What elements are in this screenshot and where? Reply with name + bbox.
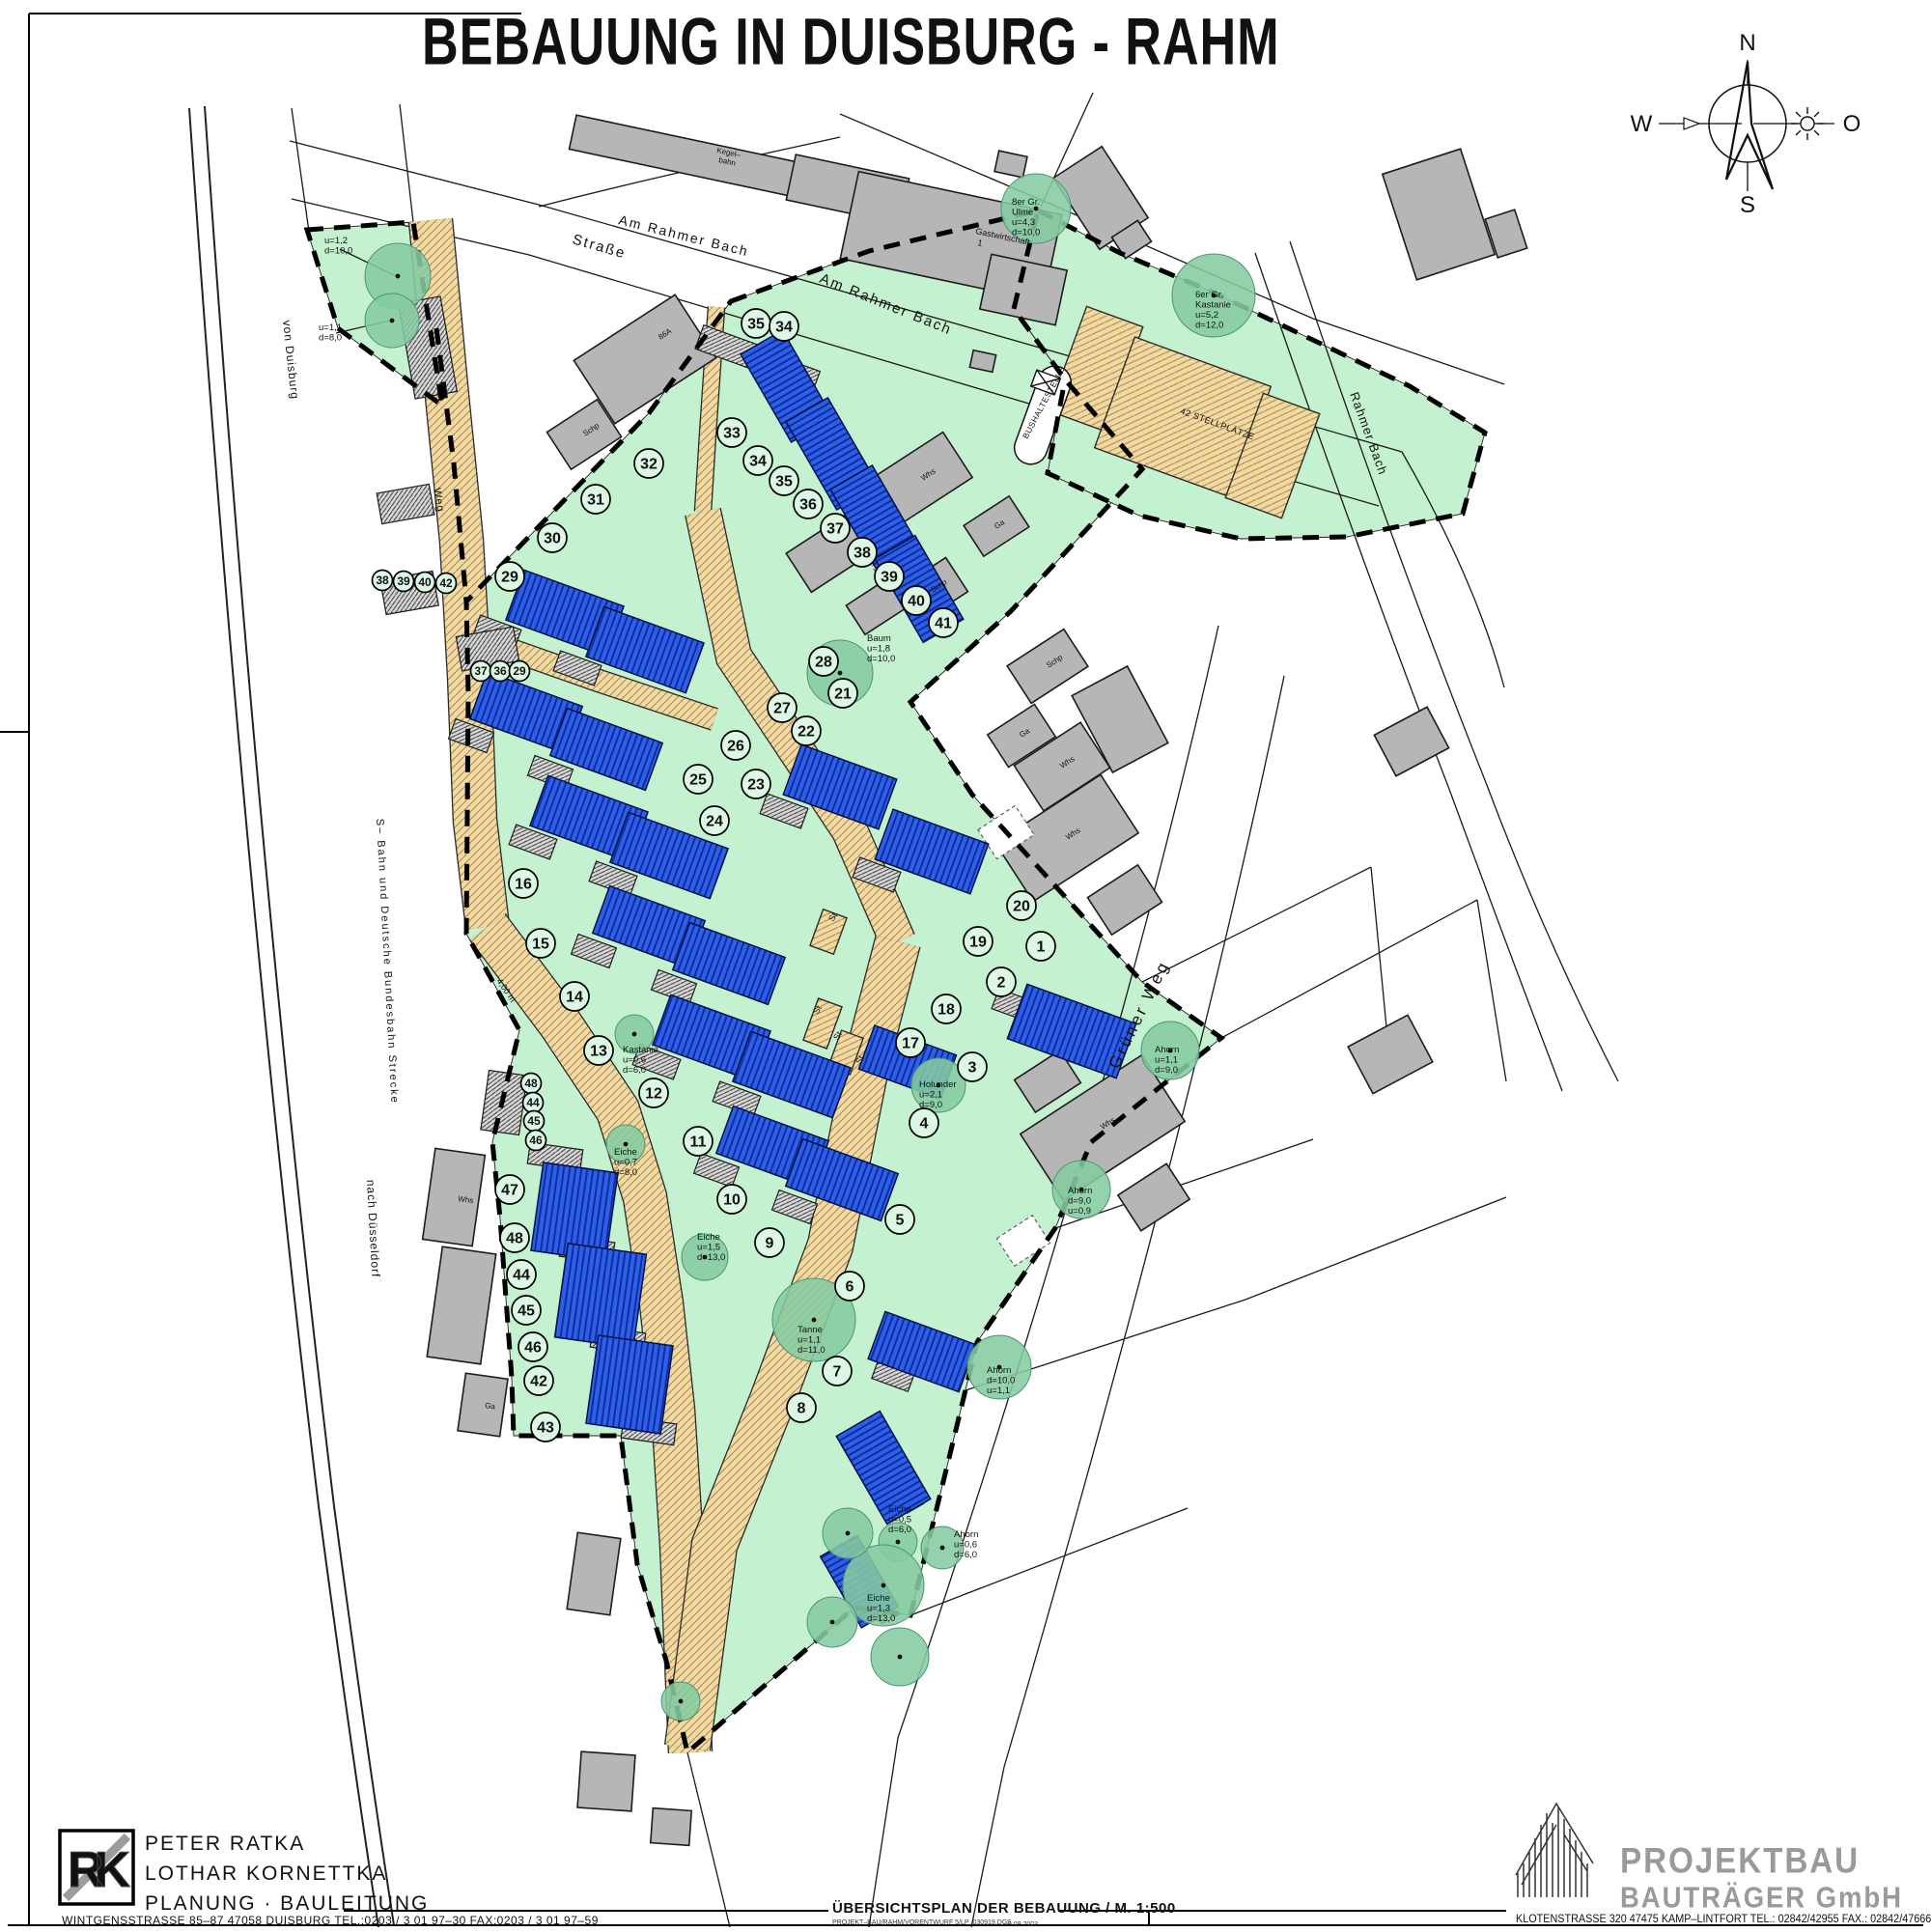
existing-building	[427, 1246, 495, 1364]
compass-west-arrow	[1684, 118, 1699, 129]
tree-trunk-dot	[396, 274, 401, 279]
tree-trunk-dot	[624, 1142, 629, 1147]
architect-block: PETER RATKA LOTHAR KORNETTKA PLANUNG · B…	[145, 1829, 429, 1918]
lot-number: 44	[513, 1268, 530, 1284]
lot-number: 9	[766, 1236, 774, 1252]
plan-title-block: ÜBERSICHTSPLAN DER BEBAUUNG / M. 1:500 P…	[832, 1900, 1161, 1926]
tree-label: u=1,1d=8,0	[319, 322, 342, 344]
street-label: nach Düsseldorf	[364, 1179, 382, 1277]
tree-trunk-dot	[679, 1699, 684, 1704]
lot-number: 7	[833, 1364, 842, 1381]
lot-number: 32	[640, 457, 658, 473]
lot-number: 38	[854, 546, 871, 562]
garage-strip	[377, 484, 434, 523]
parking-group-number: 37	[474, 664, 488, 678]
lot-number: 15	[532, 937, 549, 953]
title-block: PETER RATKA LOTHAR KORNETTKA PLANUNG · B…	[0, 1815, 1931, 1932]
lot-number: 34	[775, 320, 793, 336]
lot-number: 23	[747, 777, 765, 794]
parking-group-number: 45	[527, 1114, 541, 1128]
lot-number: 45	[518, 1303, 535, 1320]
tree-trunk-dot	[390, 319, 395, 323]
parking-group-number: 44	[526, 1096, 540, 1109]
sun-icon-ray	[1796, 130, 1801, 135]
plan-file: PROJEKT–BAU/RAHM/VORENTWURF 5/LP_030919.…	[832, 1919, 1161, 1926]
new-building-roof	[586, 1335, 673, 1434]
existing-building	[1383, 149, 1495, 280]
lot-number: 26	[727, 739, 744, 755]
lot-number: 39	[881, 570, 898, 586]
lot-number: 34	[749, 454, 767, 470]
lot-number: 16	[515, 877, 532, 893]
parking-group-number: 38	[376, 574, 389, 587]
lot-number: 10	[723, 1192, 741, 1209]
existing-building	[1118, 1163, 1189, 1231]
tree-trunk-dot	[940, 1546, 945, 1551]
lot-number: 42	[530, 1374, 547, 1390]
plan-title: ÜBERSICHTSPLAN DER BEBAUUNG / M. 1:500	[832, 1900, 1161, 1917]
property-line	[1221, 900, 1477, 1038]
tree-trunk-dot	[632, 1032, 637, 1037]
lot-number: 17	[902, 1036, 919, 1052]
lot-number: 35	[775, 474, 793, 490]
tree-trunk-dot	[896, 1540, 901, 1545]
sun-icon-core	[1801, 117, 1814, 130]
architect-name-1: PETER RATKA	[145, 1829, 429, 1859]
lot-number: 19	[969, 935, 987, 951]
plan-date: 19.09.2003	[1004, 1921, 1038, 1928]
lot-number: 48	[506, 1231, 523, 1247]
existing-building	[423, 1148, 486, 1246]
compass-rose: NSWO	[1631, 30, 1861, 218]
lot-number: 11	[690, 1134, 707, 1151]
existing-building	[969, 350, 995, 373]
architect-address: WINTGENSSTRASSE 85–87 47058 DUISBURG TEL…	[62, 1914, 599, 1927]
sun-icon-ray	[1814, 130, 1819, 135]
company-name-2: BAUTRÄGER GmbH	[1620, 1882, 1903, 1916]
property-line	[292, 108, 309, 232]
lot-number: 47	[501, 1183, 518, 1199]
lot-number: 18	[938, 1002, 955, 1019]
compass-label-east: O	[1843, 111, 1861, 137]
lot-number: 27	[773, 701, 791, 717]
tree-trunk-dot	[898, 1655, 903, 1660]
property-line	[1477, 900, 1506, 1081]
existing-building	[1348, 1015, 1433, 1093]
street-label: S– Bahn und Deutsche Bundesbahn Strecke	[374, 819, 400, 1106]
lot-number: 3	[968, 1060, 977, 1077]
compass-needle	[1726, 62, 1773, 189]
existing-building	[994, 151, 1027, 178]
tree-label: Ahornd=9,0u=0,9	[1068, 1186, 1092, 1217]
lot-number: 35	[747, 317, 765, 333]
page: { "title": "BEBAUUNG IN DUISBURG - RAHM"…	[0, 0, 1931, 1932]
lot-number: 21	[834, 686, 852, 703]
tree-label: Ahornu=0,6d=6,0	[954, 1529, 978, 1560]
lot-number: 29	[501, 570, 518, 586]
lot-number: 14	[566, 990, 583, 1006]
lot-number: 1	[1037, 939, 1046, 956]
lot-number: 37	[826, 521, 844, 538]
company-name-1: PROJEKTBAU	[1620, 1841, 1903, 1882]
lot-number: 24	[706, 814, 723, 830]
existing-building	[1374, 707, 1448, 775]
tree-trunk-dot	[812, 1318, 817, 1323]
architect-name-2: LOTHAR KORNETTKA	[145, 1859, 429, 1889]
lot-number: 22	[798, 724, 815, 741]
drawing-title: BEBAUUNG IN DUISBURG - RAHM	[422, 4, 1065, 80]
tree-label: Eicheu=0,5d=6,0	[888, 1504, 911, 1535]
parking-group-number: 46	[529, 1134, 543, 1147]
lot-number: 28	[815, 655, 832, 671]
lot-number: 33	[723, 426, 741, 442]
lot-number: 31	[587, 492, 604, 509]
existing-building	[458, 1373, 508, 1437]
lot-number: 46	[524, 1340, 542, 1357]
railway-track	[189, 108, 378, 1927]
street-label: von Duisburg	[280, 320, 302, 401]
lot-number: 6	[846, 1279, 854, 1296]
existing-building	[567, 1532, 621, 1614]
parking-group-number: 42	[439, 576, 453, 590]
existing-building	[1087, 865, 1161, 935]
property-line	[400, 104, 413, 222]
compass-label-south: S	[1740, 192, 1755, 218]
company-block: PROJEKTBAU BAUTRÄGER GmbH	[1620, 1842, 1917, 1915]
compass-label-north: N	[1739, 30, 1755, 56]
lot-number: 13	[590, 1044, 607, 1060]
tree-trunk-dot	[830, 1620, 835, 1625]
lot-number: 41	[935, 616, 952, 632]
lot-number: 36	[799, 497, 817, 514]
tree-trunk-dot	[846, 1531, 851, 1536]
street-label: Am Rahmer Bach	[617, 211, 750, 259]
company-address: KLOTENSTRASSE 320 47475 KAMP–LINTFORT TE…	[1516, 1914, 1931, 1925]
property-line	[1371, 867, 1386, 1027]
parking-group-number: 39	[397, 574, 410, 588]
lot-number: 43	[537, 1420, 554, 1437]
lot-number: 4	[920, 1116, 929, 1133]
lot-number: 20	[1013, 899, 1030, 915]
new-building-roof	[555, 1244, 647, 1348]
lot-number: 12	[645, 1086, 662, 1103]
tree-trunk-dot	[882, 1583, 886, 1588]
parking-group-number: 36	[493, 664, 507, 678]
site-plan-svg: u=1,2d=10,0u=1,1d=8,08er Gr.Ulmeu=4,3d=1…	[0, 0, 1931, 1932]
tree-label: Ahornu=1,1d=9,0	[1155, 1045, 1179, 1076]
parking-group-number: 48	[524, 1077, 538, 1090]
property-line	[1142, 867, 1371, 982]
street-label: Straße	[571, 232, 628, 263]
lot-number: 5	[896, 1213, 905, 1229]
lot-number: 8	[798, 1401, 806, 1417]
compass-label-west: W	[1631, 111, 1653, 137]
sun-icon-ray	[1796, 112, 1801, 117]
lot-number: 40	[908, 594, 925, 610]
existing-building	[577, 1751, 635, 1811]
parking-group-number: 29	[513, 664, 526, 678]
sun-icon-ray	[1814, 112, 1819, 117]
property-line	[1245, 1197, 1506, 1300]
lot-number: 30	[544, 531, 561, 547]
parking-group-number: 40	[418, 575, 432, 589]
lot-number: 2	[997, 975, 1006, 992]
lot-number: 25	[689, 772, 707, 789]
building-label: Ga	[485, 1401, 496, 1411]
sun-icon	[1791, 107, 1824, 140]
tree-label: Eicheu=0,7d=8,0	[614, 1147, 637, 1178]
tree-trunk-dot	[838, 671, 843, 676]
